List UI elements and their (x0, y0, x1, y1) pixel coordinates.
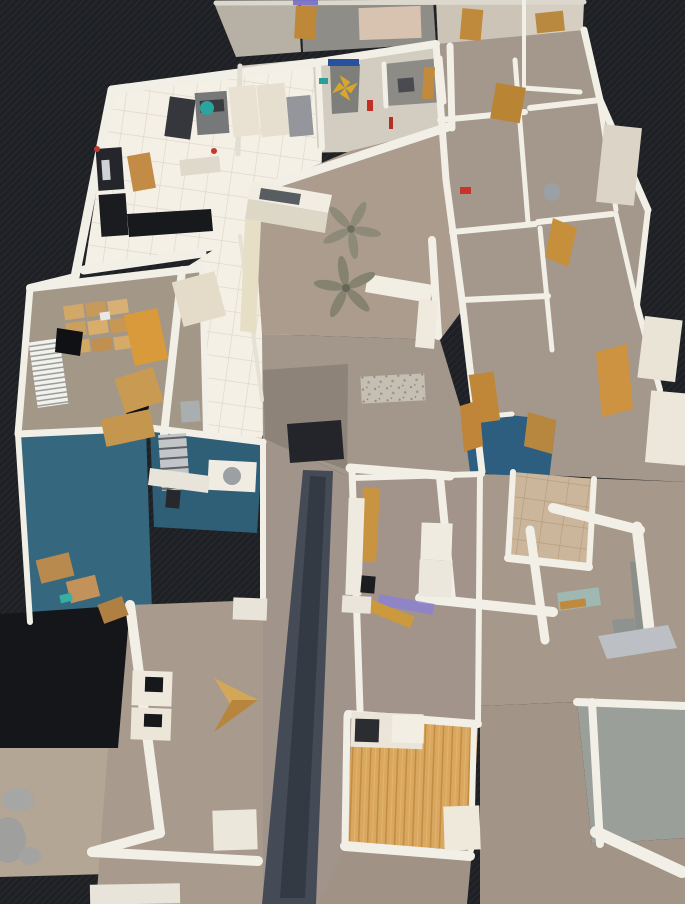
wood-slab-right-edge (596, 344, 633, 417)
wood-shelf-topright (535, 11, 565, 34)
purple-glow-strip (293, 0, 318, 5)
office-monitor (360, 575, 375, 593)
corridor-white-box (233, 597, 268, 620)
top-door-right (460, 8, 484, 41)
storage-box-1 (63, 304, 85, 321)
cabinet-topright-room (596, 124, 642, 206)
center-couch-seat-2 (418, 559, 452, 597)
wall-center-office-divider (352, 474, 482, 478)
top-office-desk (358, 6, 421, 40)
teal-stool (200, 101, 214, 115)
top-door-left (294, 5, 317, 39)
storage-binder-white (99, 311, 110, 320)
red-marker-1 (94, 146, 100, 152)
storage-box-8 (91, 337, 113, 353)
equipment-cart (195, 91, 230, 135)
exam-screen-glint (101, 160, 110, 181)
xray-blue-sign (328, 59, 359, 66)
wall-top-edge (216, 2, 584, 3)
wall-center-office-east (478, 474, 480, 722)
red-marker-2 (211, 148, 217, 154)
teal-wall-sign (319, 78, 328, 84)
office-chair-black (164, 96, 195, 139)
wood-room-cabinet (443, 805, 481, 850)
dollhouse-svg (0, 0, 685, 904)
reception-counter-return (415, 299, 438, 349)
corridor-sink (180, 400, 200, 422)
exam-wall-screen-1 (96, 147, 125, 191)
exam-recliner-2 (256, 83, 289, 138)
exit-sign (460, 187, 471, 194)
storage-scan-hole-1 (55, 328, 83, 356)
gray-office-chair (397, 77, 414, 92)
lowerleft-monitor-1 (145, 677, 164, 693)
anesthesia-machine (286, 95, 313, 137)
toilet-blob-1 (2, 788, 34, 812)
kitchen-fridge (392, 714, 425, 743)
rug-dark-mat-center (287, 420, 344, 463)
fire-extinguisher (367, 100, 373, 111)
center-couch-seat-1 (420, 522, 452, 560)
granite-vanity (360, 373, 425, 403)
wall-xray-right (318, 64, 322, 148)
red-wall-item (389, 117, 393, 129)
wall-gray-office-left (384, 64, 386, 106)
cream-cabinet-right-1 (637, 316, 682, 382)
wall-wood-room-left (345, 716, 347, 844)
kitchen-sink-dark (355, 719, 380, 743)
lowerleft-monitor-2 (144, 714, 162, 728)
storage-box-3 (107, 299, 129, 316)
floor-scan-hole (0, 605, 130, 748)
storage-box-5 (87, 319, 109, 336)
dollhouse-viewport[interactable] (0, 0, 685, 904)
wall-upperhall-right (450, 46, 452, 128)
round-mirror (543, 183, 561, 201)
cream-box-bottomleft (212, 809, 257, 851)
washer-door (223, 467, 241, 485)
toilet-blob-3 (19, 847, 41, 865)
exam-wall-screen-2 (99, 193, 129, 237)
gray-office-door (422, 67, 435, 100)
white-strip-bottom-edge (90, 883, 180, 904)
wall-cluster-h3 (462, 296, 548, 300)
white-box-center (342, 595, 372, 613)
blue-patch-wood-panel-1 (460, 400, 483, 452)
cream-cabinet-right-2 (645, 390, 685, 465)
exam-recliner-1 (228, 85, 260, 138)
microscope (165, 489, 181, 508)
wood-cabinet-topright (490, 83, 526, 124)
